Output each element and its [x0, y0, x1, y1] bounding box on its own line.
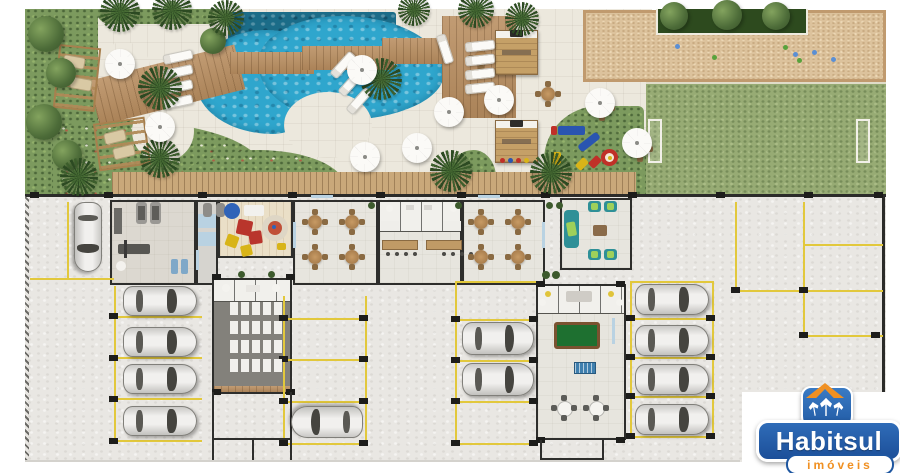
palm [152, 0, 192, 30]
grill [510, 120, 523, 127]
tree [46, 58, 76, 88]
umbrella [622, 128, 652, 158]
tree [26, 104, 62, 140]
glass-door [293, 222, 296, 248]
col [874, 192, 883, 198]
col [626, 315, 635, 321]
stool [413, 252, 417, 256]
parking-stripe [455, 319, 536, 321]
toy [277, 243, 286, 250]
car [123, 364, 197, 394]
play-bench [558, 126, 585, 135]
party-table [468, 209, 494, 235]
car [635, 325, 709, 356]
logo-roof-icon [806, 383, 844, 398]
parking-stripe [455, 443, 536, 445]
col [198, 192, 207, 198]
toilet [386, 205, 393, 212]
weight-rack [114, 208, 122, 234]
sand-toy [797, 58, 802, 63]
planter-tree [712, 0, 742, 30]
tree [28, 16, 64, 52]
sun-lounger [162, 49, 193, 65]
parking-stripe [630, 396, 714, 398]
parking-stripe [114, 398, 202, 400]
toilet [616, 299, 623, 306]
car [123, 327, 197, 357]
cinema-seat-row [230, 340, 283, 353]
parking-stripe [114, 286, 116, 442]
col [626, 433, 635, 439]
ball-pit [224, 203, 240, 219]
play-post [551, 126, 557, 135]
parking-stripe [630, 281, 714, 283]
palm [430, 150, 472, 192]
col [628, 192, 637, 198]
bush [238, 271, 245, 278]
col [804, 192, 813, 198]
parking-stripe [630, 357, 714, 359]
logo-person-icon [808, 401, 820, 417]
gym-mat [171, 259, 178, 274]
col [30, 192, 39, 198]
bush [368, 202, 375, 209]
sink [424, 205, 432, 210]
shower-sign [608, 291, 614, 297]
col [359, 398, 368, 404]
cinema-seat-row [230, 302, 283, 315]
car [462, 322, 534, 355]
pergola-lounger [103, 129, 127, 146]
car [74, 202, 102, 272]
glass-door [478, 195, 500, 198]
col [288, 192, 297, 198]
party-table [302, 244, 328, 270]
sun-lounger [465, 67, 496, 80]
party-table [505, 244, 531, 270]
sink [406, 205, 414, 210]
umbrella [105, 49, 135, 79]
col [359, 440, 368, 446]
bush [268, 271, 275, 278]
col [109, 438, 118, 444]
palm [398, 0, 430, 26]
col [871, 332, 880, 338]
brand-tagline: imóveis [807, 458, 873, 472]
palm [140, 138, 180, 178]
party-table [339, 209, 365, 235]
carousel [608, 156, 612, 160]
palm [208, 0, 244, 36]
parking-stripe [114, 440, 202, 442]
umbrella [350, 142, 380, 172]
cushion [591, 251, 598, 258]
col [376, 192, 385, 198]
parking-stripe [114, 357, 202, 359]
play-mat [224, 233, 239, 248]
cinema-seat-row [230, 359, 283, 372]
glass-door [542, 222, 545, 248]
col [359, 315, 368, 321]
kitchen-cabinet [443, 221, 461, 231]
col [529, 357, 538, 363]
palm [530, 152, 572, 194]
stool [451, 252, 455, 256]
bush [542, 271, 550, 279]
parking-stripe [114, 316, 202, 318]
col [616, 437, 625, 443]
party-table [468, 244, 494, 270]
wall [252, 440, 254, 460]
col [109, 313, 118, 319]
toilet [539, 299, 546, 306]
parking-stripe [455, 281, 536, 283]
umbrella [145, 112, 175, 142]
kids-table [244, 205, 264, 216]
stool [460, 252, 464, 256]
stool [442, 252, 446, 256]
col [706, 433, 715, 439]
parking-stripe [67, 202, 69, 280]
umbrella [347, 55, 377, 85]
col [706, 354, 715, 360]
play-mat [248, 230, 263, 245]
col [359, 356, 368, 362]
col [286, 274, 295, 280]
col [731, 287, 740, 293]
col [626, 393, 635, 399]
planter-tree [660, 2, 688, 30]
col [457, 192, 466, 198]
col [451, 440, 460, 446]
parking-stripe [803, 202, 805, 337]
parking-stripe [455, 360, 536, 362]
col [279, 440, 288, 446]
bush [455, 202, 462, 209]
car [123, 286, 197, 316]
cushion [607, 203, 614, 210]
toilet [222, 284, 230, 292]
parking-stripe [283, 359, 367, 361]
bbq-item [500, 158, 505, 163]
parking-stripe [30, 278, 114, 280]
parking-stripe [630, 318, 714, 320]
cushion [607, 251, 614, 258]
col [279, 398, 288, 404]
toilet [272, 284, 280, 292]
glass-door [311, 195, 333, 198]
logo-person-icon [832, 401, 844, 417]
bbq-item [516, 158, 521, 163]
exercise-bike [203, 203, 212, 217]
stool [404, 252, 408, 256]
car [635, 284, 709, 315]
sand-toy [812, 50, 817, 55]
bush [546, 202, 553, 209]
car [462, 363, 534, 396]
bench-press [118, 244, 150, 254]
col [706, 393, 715, 399]
umbrella [484, 85, 514, 115]
games-table [552, 396, 576, 420]
play-mat [240, 244, 253, 257]
toy [272, 225, 276, 229]
sand-toy [783, 45, 788, 50]
col [109, 396, 118, 402]
parking-stripe [283, 443, 367, 445]
party-table [302, 209, 328, 235]
gym-mat [181, 259, 188, 274]
treadmill-belt [152, 206, 159, 220]
elevator-panel [198, 232, 216, 246]
coffee-table [593, 225, 607, 236]
palm [100, 0, 140, 32]
parking-stripe [283, 318, 367, 320]
col [706, 315, 715, 321]
parking-stripe [735, 290, 883, 292]
parking-stripe [630, 436, 714, 438]
wall [212, 392, 214, 460]
treadmill-belt [138, 206, 145, 220]
party-table [505, 209, 531, 235]
car [635, 404, 709, 435]
dining-table [535, 81, 561, 107]
col [451, 316, 460, 322]
stool [386, 252, 390, 256]
barbell [124, 240, 127, 258]
bbq-item [508, 158, 513, 163]
glass-door [612, 318, 615, 344]
sun-lounger [436, 33, 455, 65]
cushion [591, 203, 598, 210]
parking-stripe [283, 401, 367, 403]
brand-name: Habitsul [776, 426, 883, 457]
col [451, 357, 460, 363]
cinema-seat-row [230, 321, 283, 334]
sand-toy [675, 44, 680, 49]
logo-person-icon [820, 398, 832, 416]
umbrella [434, 97, 464, 127]
col [451, 398, 460, 404]
col [529, 398, 538, 404]
palm [60, 158, 98, 196]
parking-stripe [803, 244, 883, 246]
car [291, 406, 363, 438]
sand-toy [712, 55, 717, 60]
col [799, 332, 808, 338]
col [529, 316, 538, 322]
col [109, 355, 118, 361]
games-table [584, 396, 608, 420]
site-plan: Habitsul imóveis [0, 0, 900, 473]
col [212, 274, 221, 280]
bench [566, 291, 592, 302]
car [123, 406, 197, 436]
habitsul-logo: Habitsul imóveis [756, 382, 896, 473]
bush [556, 202, 563, 209]
palm [458, 0, 494, 28]
parking-stripe [455, 401, 536, 403]
play-toy [575, 157, 589, 171]
col [716, 192, 725, 198]
bbq-item [524, 158, 529, 163]
sand-toy [831, 57, 836, 62]
umbrella [585, 88, 615, 118]
slab-edge [25, 460, 740, 462]
col [616, 281, 625, 287]
shower-sign [545, 291, 551, 297]
umbrella [402, 133, 432, 163]
glass-door [196, 250, 199, 270]
sink [246, 285, 260, 292]
col [799, 287, 808, 293]
gym-ball [116, 261, 126, 271]
col [536, 281, 545, 287]
parking-stripe [735, 202, 737, 292]
wall [602, 440, 604, 460]
col [626, 354, 635, 360]
stool [395, 252, 399, 256]
wall [540, 440, 542, 460]
play-toy [588, 155, 602, 169]
col [104, 192, 113, 198]
planter-tree [762, 2, 790, 30]
sand-toy [793, 52, 798, 57]
kitchen-cabinet [381, 221, 399, 231]
logo-tagline: imóveis [786, 454, 894, 473]
palm [138, 66, 182, 110]
pergola-lounger [112, 144, 136, 161]
car [635, 364, 709, 395]
party-table [339, 244, 365, 270]
bush [552, 271, 560, 279]
palm [505, 2, 539, 36]
parking-stripe [455, 281, 457, 445]
